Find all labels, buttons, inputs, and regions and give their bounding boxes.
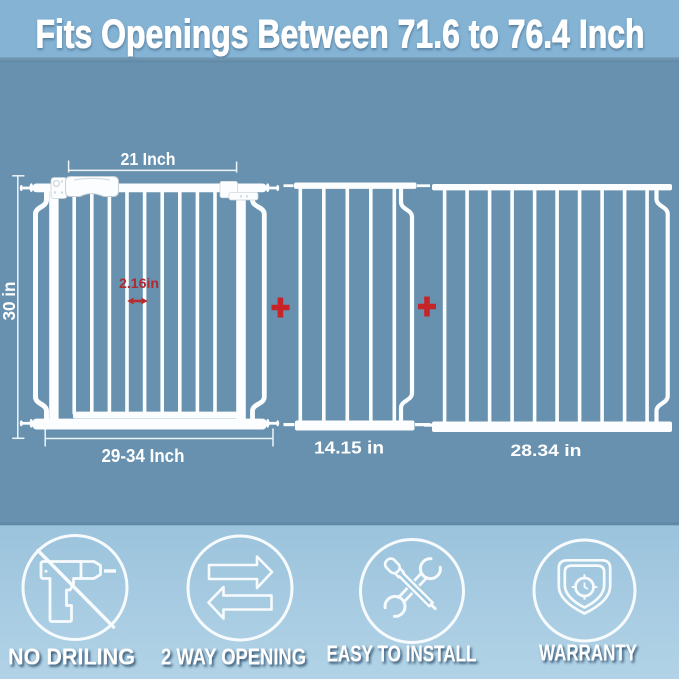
svg-text:28.34 in: 28.34 in xyxy=(511,441,582,460)
svg-text:EASY TO INSTALL: EASY TO INSTALL xyxy=(327,641,477,667)
svg-text:14.15 in: 14.15 in xyxy=(314,438,384,458)
svg-text:29-34 Inch: 29-34 Inch xyxy=(102,445,185,466)
svg-text:2.16in: 2.16in xyxy=(119,276,159,291)
svg-text:30 in: 30 in xyxy=(0,282,19,321)
svg-text:Fits Openings Between 71.6 to: Fits Openings Between 71.6 to 76.4 Inch xyxy=(36,12,645,56)
svg-text:WARRANTY: WARRANTY xyxy=(539,640,637,666)
svg-text:21 Inch: 21 Inch xyxy=(121,149,176,169)
svg-text:NO DRILING: NO DRILING xyxy=(8,644,135,670)
svg-text:2 WAY OPENING: 2 WAY OPENING xyxy=(161,644,306,670)
